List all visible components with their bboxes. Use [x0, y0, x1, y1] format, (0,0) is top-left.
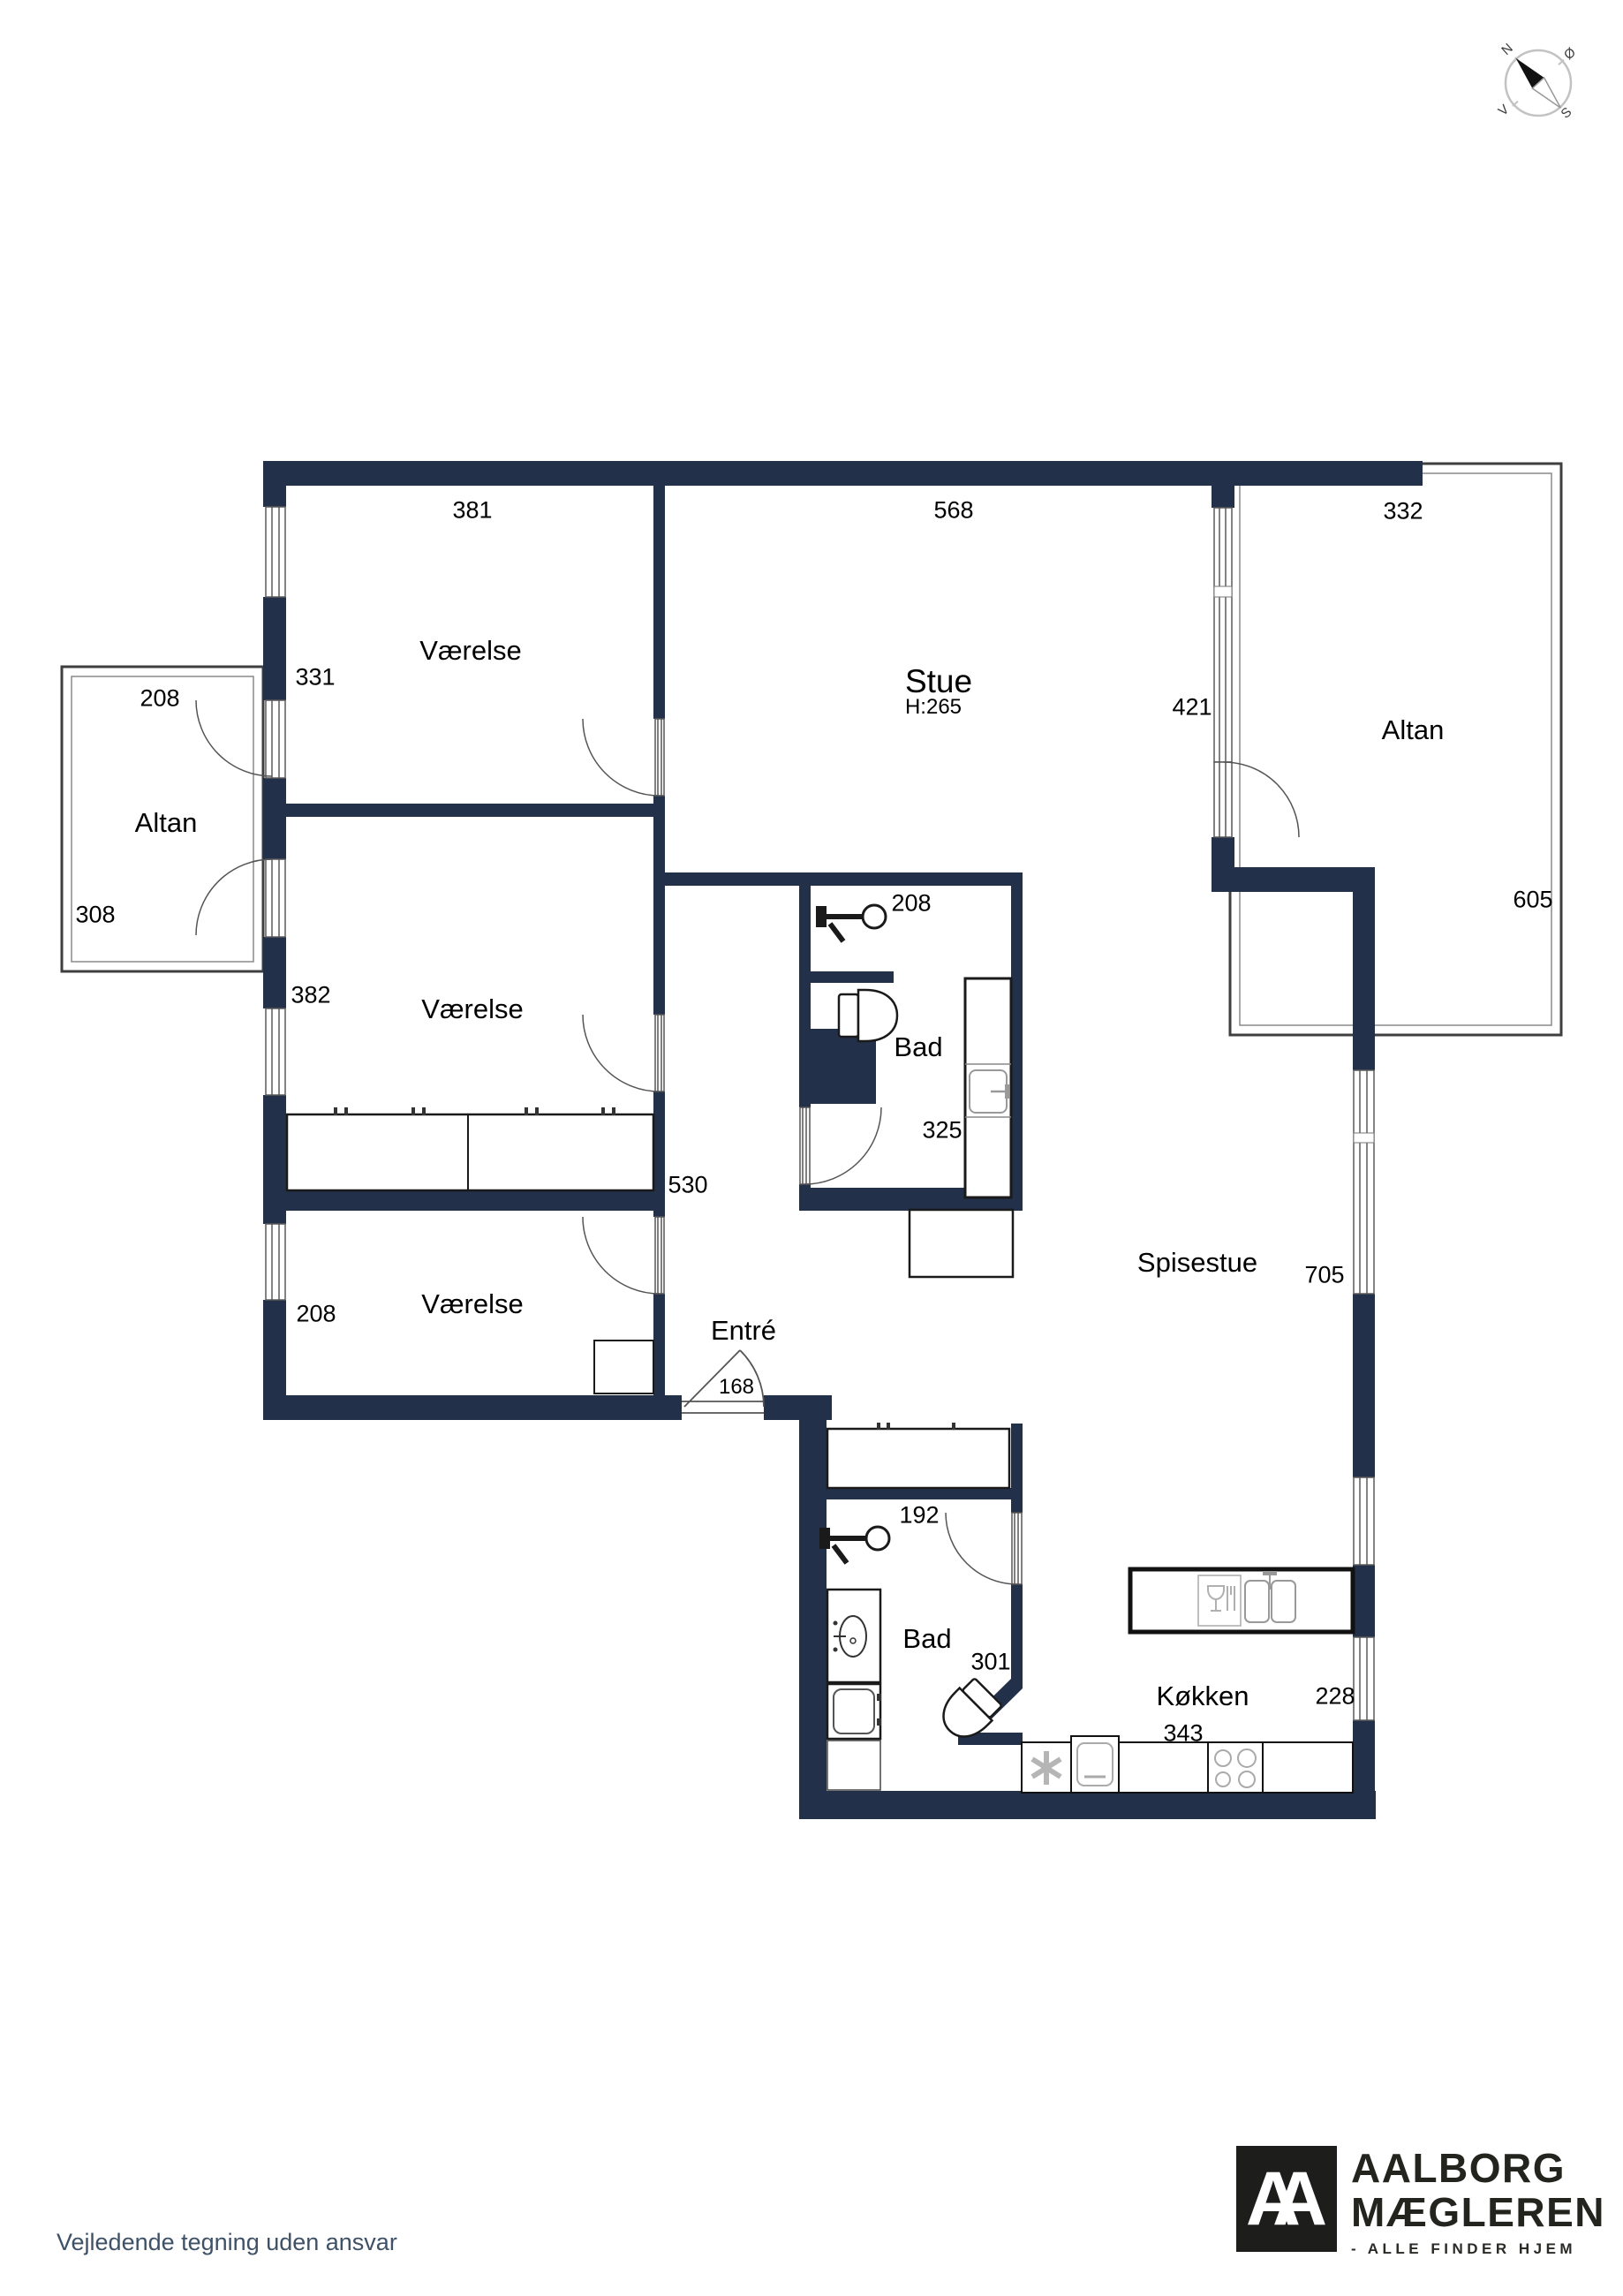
dimension-label: 208: [140, 685, 179, 713]
dimension-label: 605: [1513, 887, 1552, 914]
room-ceiling-height: H:265: [905, 695, 962, 720]
dimension-label: 308: [75, 902, 115, 929]
disclaimer-text: Vejledende tegning uden ansvar: [57, 2229, 397, 2256]
dimension-label: 381: [452, 497, 492, 525]
room-label-entre: Entré: [711, 1315, 776, 1347]
room-label-spisestue: Spisestue: [1137, 1247, 1257, 1279]
door: [946, 1513, 1022, 1584]
dimension-label: 568: [933, 497, 973, 525]
logo-text: AALBORG MÆGLEREN - ALLE FINDER HJEM: [1351, 2146, 1605, 2258]
dimension-label: 530: [668, 1172, 707, 1199]
room-label-vaerelse-3: Værelse: [421, 1288, 523, 1320]
dimension-label: 421: [1172, 694, 1212, 721]
door: [800, 1107, 881, 1184]
room-label-altan-right: Altan: [1382, 714, 1445, 746]
dimension-label: 228: [1315, 1683, 1355, 1711]
bathroom-sink: [827, 1590, 880, 1682]
balcony-door: [1214, 762, 1299, 837]
cabinet: [910, 1210, 1013, 1277]
dimension-label: 382: [291, 982, 330, 1009]
dimension-label: 168: [719, 1375, 754, 1400]
room-label-koekken: Køkken: [1156, 1680, 1249, 1712]
dimension-label: 301: [970, 1649, 1010, 1676]
dimension-label: 192: [899, 1502, 939, 1529]
room-label-vaerelse-1: Værelse: [419, 635, 521, 667]
window: [1214, 508, 1232, 762]
floor-plan-page: N Ø S V Værelse Stue H:265 Altan Altan V…: [0, 0, 1623, 2296]
room-label-bad-1: Bad: [894, 1031, 942, 1063]
logo-monogram: AA: [1246, 2161, 1299, 2237]
agency-logo: AA AALBORG MÆGLEREN - ALLE FINDER HJEM: [1236, 2146, 1605, 2258]
dimension-label: 332: [1383, 498, 1423, 525]
logo-tagline: - ALLE FINDER HJEM: [1351, 2240, 1605, 2258]
logo-line-2: MÆGLEREN: [1351, 2190, 1605, 2234]
dimension-label: 208: [296, 1301, 336, 1328]
dimension-label: 705: [1304, 1262, 1344, 1289]
shower-icon: [819, 1527, 889, 1563]
wardrobe: [287, 1107, 653, 1190]
room-label-bad-2: Bad: [902, 1623, 951, 1655]
bathroom-vanity: [965, 978, 1011, 1197]
toilet-icon: [839, 990, 897, 1041]
room-label-vaerelse-2: Værelse: [421, 993, 523, 1025]
kitchen-island: [1130, 1569, 1353, 1632]
window: [1354, 1070, 1374, 1720]
room-label-altan-left: Altan: [135, 807, 198, 839]
cabinet: [594, 1341, 653, 1393]
door: [583, 719, 664, 1294]
cabinet: [827, 1423, 1009, 1488]
toilet-icon: [933, 1675, 1005, 1747]
dimension-label: 208: [891, 890, 931, 918]
symbols-layer: [0, 0, 1623, 2296]
balcony-door: [196, 700, 285, 937]
cooktop-icon: [1208, 1742, 1263, 1793]
washing-machine: [827, 1684, 881, 1739]
dimension-label: 325: [922, 1117, 962, 1144]
cabinet: [827, 1741, 880, 1790]
shower-icon: [816, 905, 886, 941]
dimension-label: 343: [1163, 1720, 1203, 1748]
logo-monogram-square: AA: [1236, 2146, 1337, 2252]
oven-icon: [1071, 1736, 1119, 1793]
dimension-label: 331: [295, 664, 335, 691]
logo-line-1: AALBORG: [1351, 2146, 1605, 2190]
